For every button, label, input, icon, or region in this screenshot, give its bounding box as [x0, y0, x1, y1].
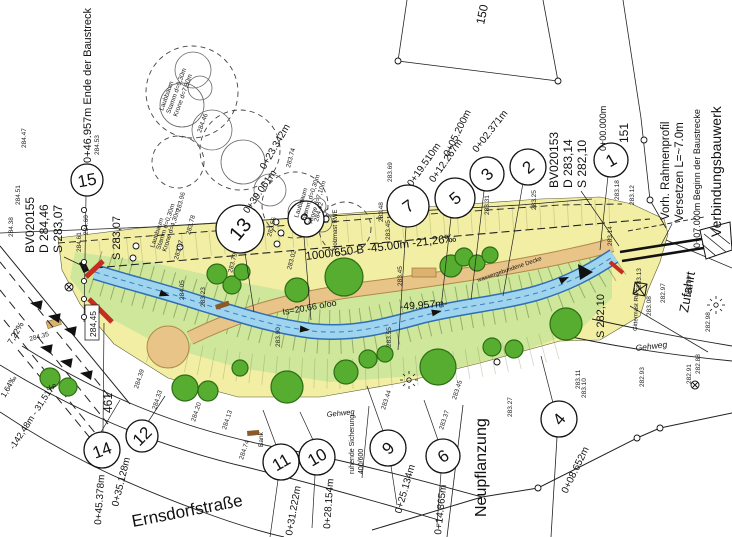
station-label-6: 0+14.865m — [433, 484, 449, 535]
begin-of-section-label: 0+07.000m Beginn der Baustrecke — [692, 109, 702, 248]
station-marker-6: 6 — [426, 439, 460, 473]
road-percent-label: 7,22% — [5, 320, 26, 346]
lattice-mast-label: Gittermast RWE — [633, 288, 641, 331]
road-gradient-label: -142,48m - 31,51‰ — [7, 381, 58, 451]
elevation-label: 283.37 — [438, 409, 451, 430]
station-marker-5: 5 — [435, 178, 475, 218]
resting-protection-label-2: 400/600 — [358, 449, 365, 474]
station-label-10: 0+28.154m — [322, 478, 336, 529]
new-planting-label: Neupflanzung — [473, 418, 490, 517]
elevation-label: 282.91 — [686, 364, 693, 384]
elevation-label: 284.61 — [76, 232, 83, 252]
elevation-label: 283.96 — [175, 191, 187, 212]
elevation-label: 283.45 — [397, 266, 404, 286]
invert-level-left: S 283,07 — [111, 216, 123, 260]
end-of-section-label: 0+46.957m Ende der Baustreck — [82, 7, 94, 163]
benchmark-left-d: D 284,46 — [37, 204, 51, 253]
parcel-461: 461 — [101, 393, 115, 413]
elevation-label: 282.93 — [639, 367, 646, 387]
benchmark-right-d: D 283,14 — [561, 139, 575, 188]
elevation-label: 284.05 — [179, 280, 186, 300]
road-promille-label: 1,64‰ — [0, 374, 19, 399]
station-marker-14: 14 — [84, 432, 120, 468]
elevation-label: 283.18 — [614, 180, 621, 200]
benchmark-left-s: S 283,07 — [51, 205, 65, 253]
station-label-11: 0+31.222m — [284, 485, 304, 536]
bench-label: Bank — [258, 431, 265, 447]
height-box: 284,45 — [85, 305, 99, 340]
elevation-label: 283.44 — [380, 389, 393, 410]
elevation-label: 283.13 — [636, 268, 643, 288]
elevation-label: 282.98 — [705, 312, 712, 332]
station-marker-13: 13 — [216, 205, 264, 253]
elevation-label: 283.74 — [285, 147, 297, 168]
station-label-1: 0+00.000m — [598, 106, 608, 151]
elevation-label: 284.13 — [221, 409, 234, 430]
station-marker-2: 2 — [510, 149, 546, 185]
elevation-label: 284.39 — [133, 368, 146, 389]
station-marker-10: 10 — [299, 439, 335, 475]
station-marker-15: 15 — [71, 164, 103, 196]
elevation-label: 284.53 — [94, 135, 101, 155]
elevation-label: 284.35 — [29, 331, 50, 343]
elevation-label: 283.69 — [387, 162, 394, 182]
frame-profile-label-1: Vorh. Rahmenprofil — [660, 122, 672, 220]
connection-structure-label: Verbindungsbauwerk — [708, 105, 724, 237]
elevation-label: 282.97 — [660, 283, 667, 303]
station-marker-9: 9 — [370, 430, 406, 466]
invert-level-right: S 282,10 — [595, 294, 607, 338]
elevation-label: 283.25 — [531, 190, 538, 210]
elevation-label: 283.14 — [607, 226, 614, 246]
elevation-label: 283.08 — [646, 296, 653, 316]
site-plan: 284,45 1 2 3 4 5 6 — [0, 0, 732, 537]
elevation-label: 283.27 — [507, 397, 514, 417]
station-marker-12: 12 — [126, 420, 158, 452]
elevation-label: 283.23 — [200, 287, 207, 307]
station-label-9: 0+25.134m — [393, 463, 417, 514]
elevation-label: 283.90 — [275, 327, 282, 347]
elevation-label: 283.10 — [581, 378, 588, 398]
benchmark-right-s: S 282,10 — [575, 140, 589, 188]
elevation-label: 283.55 — [386, 327, 393, 347]
station-marker-11: 11 — [263, 444, 299, 480]
parcel-150: 150 — [473, 3, 491, 26]
elevation-label: 284.38 — [8, 217, 15, 237]
parcel-151: 151 — [617, 123, 631, 143]
station-label-4: 0+08.652m — [560, 445, 592, 495]
elevation-label: 284.47 — [21, 128, 28, 148]
elevation-label: 283.31 — [484, 195, 491, 215]
wood-mast-label: Holzmast RWE — [333, 209, 339, 250]
elevation-label: 282.88 — [695, 354, 702, 374]
station-label-14: 0+45.378m — [93, 474, 107, 525]
station-marker-3: 3 — [470, 157, 504, 191]
elevation-label: 283.45 — [451, 379, 464, 400]
walkway-label-right: Gehweg — [635, 339, 668, 353]
height-box-label: 284,45 — [88, 311, 98, 337]
street-name: Ernsdorfstraße — [130, 491, 244, 531]
svg-text:15: 15 — [76, 169, 98, 191]
elevation-label: 283.12 — [629, 185, 636, 205]
frame-profile-label-2: Versetzen L=~7.0m — [674, 122, 686, 222]
elevation-label: 284.20 — [190, 401, 203, 422]
station-label-2: 0+02.371m — [471, 108, 511, 154]
elevation-label: 284.51 — [15, 185, 22, 205]
elevation-label: 282.89 — [686, 276, 693, 296]
station-marker-7: 7 — [387, 185, 429, 227]
elevation-label: 284.60 — [83, 215, 90, 235]
station-marker-4: 4 — [541, 401, 577, 437]
resting-protection-label-1: ruhende Sicherung — [349, 415, 356, 474]
elevation-label: 284.74 — [238, 439, 251, 460]
site-plan-drawing: 284,45 1 2 3 4 5 6 — [0, 0, 732, 537]
elevation-label: 283.45 — [385, 220, 392, 240]
elevation-label: 283.48 — [378, 202, 385, 222]
benchmark-left-id: BV020155 — [23, 197, 37, 253]
benchmark-right-id: BV020153 — [547, 132, 561, 188]
